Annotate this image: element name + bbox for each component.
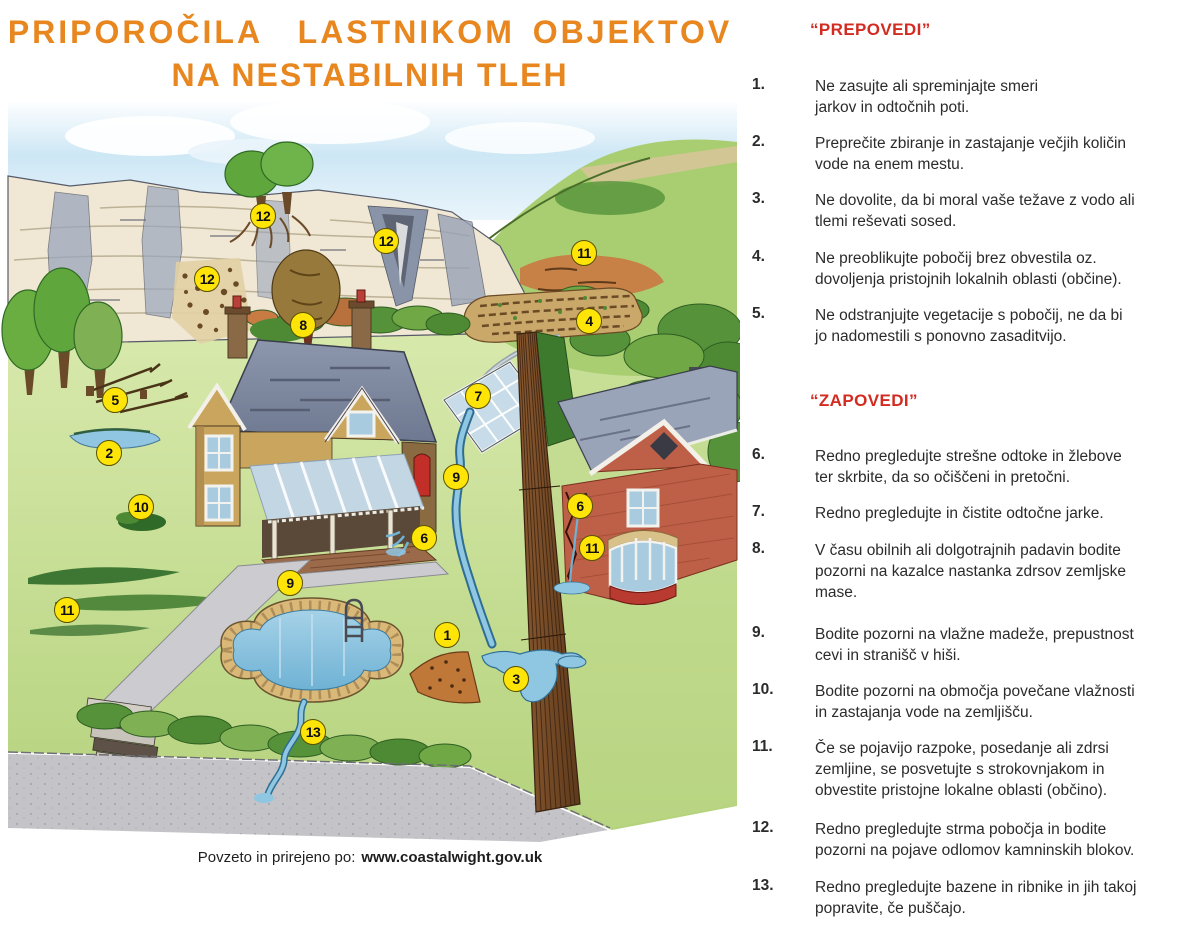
rule-text: Ne odstranjujte vegetacije s pobočij, ne… <box>815 305 1194 347</box>
rule-text: Redno pregledujte in čistite odtočne jar… <box>815 503 1194 524</box>
rule-number: 3. <box>752 190 802 208</box>
rule-text: Ne dovolite, da bi moral vaše težave z v… <box>815 190 1194 232</box>
marker-layer: 121212118457291066119111313 <box>0 0 740 943</box>
poster-title-line2: NA NESTABILNIH TLEH <box>0 57 740 94</box>
rule-item-9: 9. Bodite pozorni na vlažne madeže, prep… <box>740 624 1200 666</box>
rule-text: Bodite pozorni na območja povečane vlažn… <box>815 681 1194 723</box>
marker-7: 7 <box>465 383 491 409</box>
rule-text: Redno pregledujte strešne odtoke in žleb… <box>815 446 1194 488</box>
marker-2: 2 <box>96 440 122 466</box>
rule-number: 12. <box>752 819 802 837</box>
illustration: 121212118457291066119111313 <box>0 0 740 943</box>
marker-11: 11 <box>54 597 80 623</box>
rule-number: 11. <box>752 738 802 756</box>
attribution-prefix: Povzeto in prirejeno po: <box>198 849 356 866</box>
rule-text: Ne zasujte ali spreminjajte smeri jarkov… <box>815 76 1194 118</box>
marker-8: 8 <box>290 312 316 338</box>
rule-item-11: 11. Če se pojavijo razpoke, posedanje al… <box>740 738 1200 801</box>
rule-number: 9. <box>752 624 802 642</box>
marker-12: 12 <box>194 266 220 292</box>
marker-9: 9 <box>277 570 303 596</box>
rule-text: V času obilnih ali dolgotrajnih padavin … <box>815 540 1194 603</box>
marker-3: 3 <box>503 666 529 692</box>
attribution-url: www.coastalwight.gov.uk <box>361 849 542 866</box>
marker-11: 11 <box>571 240 597 266</box>
rule-item-8: 8. V času obilnih ali dolgotrajnih padav… <box>740 540 1200 603</box>
rule-item-4: 4. Ne preoblikujte pobočij brez obvestil… <box>740 248 1200 290</box>
rule-number: 10. <box>752 681 802 699</box>
section-heading-prepovedi: “PREPOVEDI” <box>810 20 931 40</box>
marker-13: 13 <box>300 719 326 745</box>
rule-item-12: 12. Redno pregledujte strma pobočja in b… <box>740 819 1200 861</box>
rule-item-5: 5. Ne odstranjujte vegetacije s pobočij,… <box>740 305 1200 347</box>
marker-4: 4 <box>576 308 602 334</box>
rule-text: Preprečite zbiranje in zastajanje večjih… <box>815 133 1194 175</box>
rule-item-13: 13. Redno pregledujte bazene in ribnike … <box>740 877 1200 919</box>
rule-item-3: 3. Ne dovolite, da bi moral vaše težave … <box>740 190 1200 232</box>
marker-6: 6 <box>567 493 593 519</box>
rule-text: Redno pregledujte strma pobočja in bodit… <box>815 819 1194 861</box>
rule-item-7: 7. Redno pregledujte in čistite odtočne … <box>740 503 1200 524</box>
rule-number: 2. <box>752 133 802 151</box>
rule-number: 5. <box>752 305 802 323</box>
poster-page: 121212118457291066119111313 PRIPOROČILA … <box>0 0 1200 943</box>
rule-text: Redno pregledujte bazene in ribnike in j… <box>815 877 1194 919</box>
rule-number: 7. <box>752 503 802 521</box>
rule-item-2: 2. Preprečite zbiranje in zastajanje več… <box>740 133 1200 175</box>
marker-10: 10 <box>128 494 154 520</box>
marker-6: 6 <box>411 525 437 551</box>
rule-number: 13. <box>752 877 802 895</box>
rule-text: Če se pojavijo razpoke, posedanje ali zd… <box>815 738 1194 801</box>
marker-12: 12 <box>373 228 399 254</box>
marker-1: 1 <box>434 622 460 648</box>
poster-title-line1: PRIPOROČILA LASTNIKOM OBJEKTOV <box>0 14 740 51</box>
rule-item-1: 1. Ne zasujte ali spreminjajte smeri jar… <box>740 76 1200 118</box>
marker-12: 12 <box>250 203 276 229</box>
rule-number: 4. <box>752 248 802 266</box>
rule-number: 8. <box>752 540 802 558</box>
rule-item-10: 10. Bodite pozorni na območja povečane v… <box>740 681 1200 723</box>
rule-item-6: 6. Redno pregledujte strešne odtoke in ž… <box>740 446 1200 488</box>
attribution: Povzeto in prirejeno po:www.coastalwight… <box>0 849 740 866</box>
section-heading-zapovedi: “ZAPOVEDI” <box>810 391 918 411</box>
rule-text: Bodite pozorni na vlažne madeže, prepust… <box>815 624 1194 666</box>
rule-text: Ne preoblikujte pobočij brez obvestila o… <box>815 248 1194 290</box>
marker-5: 5 <box>102 387 128 413</box>
marker-9: 9 <box>443 464 469 490</box>
rules-panel: “PREPOVEDI” 1. Ne zasujte ali spreminjaj… <box>740 0 1200 943</box>
rule-number: 6. <box>752 446 802 464</box>
rule-number: 1. <box>752 76 802 94</box>
marker-11: 11 <box>579 535 605 561</box>
